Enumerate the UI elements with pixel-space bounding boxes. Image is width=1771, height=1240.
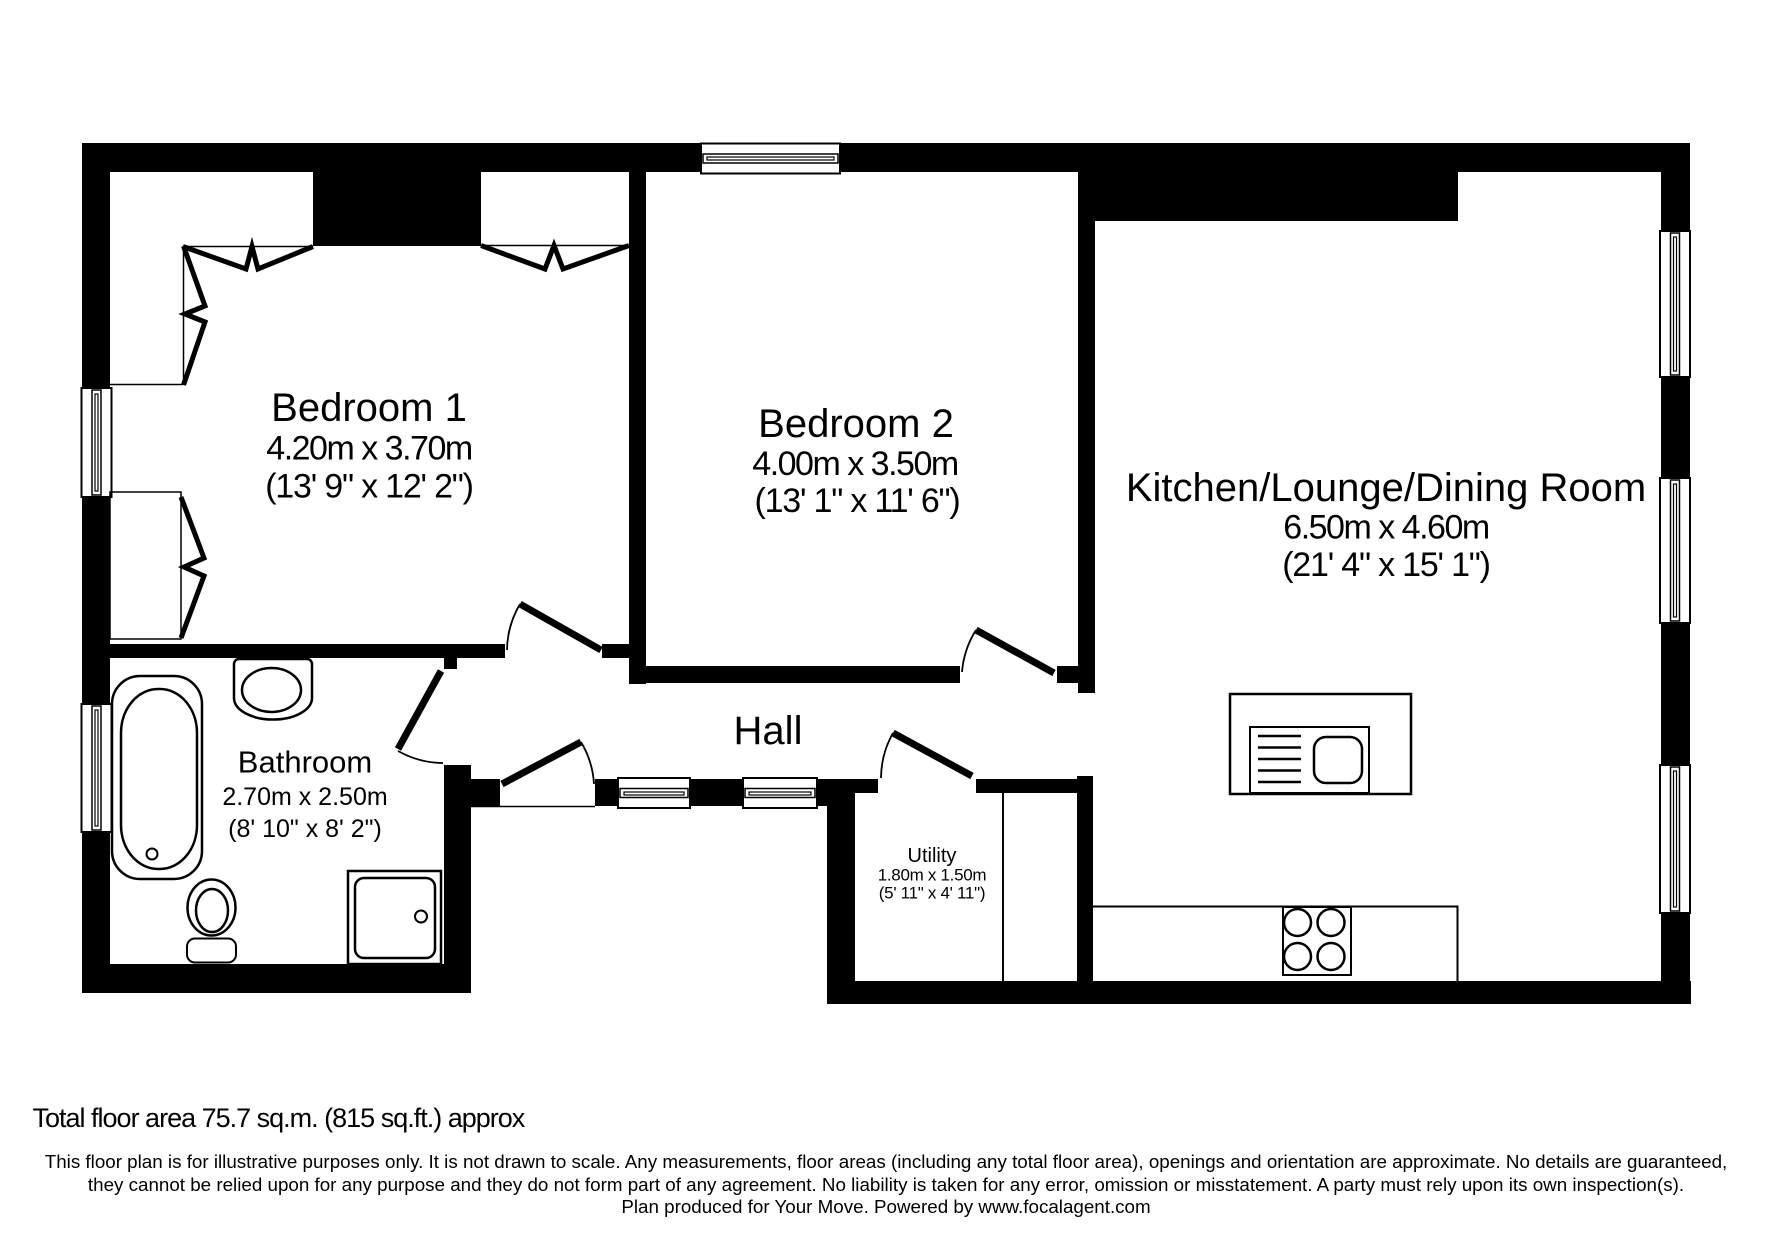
svg-text:they cannot be relied upon for: they cannot be relied upon for any purpo… bbox=[88, 1174, 1684, 1195]
svg-text:(13' 1" x 11' 6"): (13' 1" x 11' 6") bbox=[754, 482, 959, 520]
svg-text:4.00m x 3.50m: 4.00m x 3.50m bbox=[752, 445, 958, 483]
svg-text:6.50m x 4.60m: 6.50m x 4.60m bbox=[1283, 509, 1489, 547]
svg-text:(13' 9" x 12' 2"): (13' 9" x 12' 2") bbox=[265, 468, 473, 506]
svg-text:2.70m x 2.50m: 2.70m x 2.50m bbox=[222, 783, 387, 811]
svg-text:This floor plan is for illustr: This floor plan is for illustrative purp… bbox=[45, 1151, 1728, 1172]
svg-text:Utility: Utility bbox=[908, 845, 957, 867]
svg-text:1.80m x 1.50m: 1.80m x 1.50m bbox=[878, 866, 987, 885]
svg-text:Bathroom: Bathroom bbox=[238, 745, 372, 780]
svg-text:Bedroom 1: Bedroom 1 bbox=[271, 386, 467, 430]
svg-text:Total floor area 75.7 sq.m. (8: Total floor area 75.7 sq.m. (815 sq.ft.)… bbox=[33, 1103, 526, 1133]
svg-text:(21' 4" x 15' 1"): (21' 4" x 15' 1") bbox=[1282, 546, 1490, 584]
svg-text:Plan produced for Your Move. P: Plan produced for Your Move. Powered by … bbox=[621, 1196, 1150, 1217]
svg-text:4.20m x 3.70m: 4.20m x 3.70m bbox=[266, 430, 472, 468]
svg-text:(8' 10" x 8' 2"): (8' 10" x 8' 2") bbox=[228, 815, 382, 843]
svg-text:Kitchen/Lounge/Dining Room: Kitchen/Lounge/Dining Room bbox=[1126, 466, 1646, 510]
svg-text:(5' 11" x 4' 11"): (5' 11" x 4' 11") bbox=[879, 884, 985, 903]
svg-text:Bedroom 2: Bedroom 2 bbox=[758, 402, 954, 446]
svg-text:Hall: Hall bbox=[734, 709, 803, 753]
